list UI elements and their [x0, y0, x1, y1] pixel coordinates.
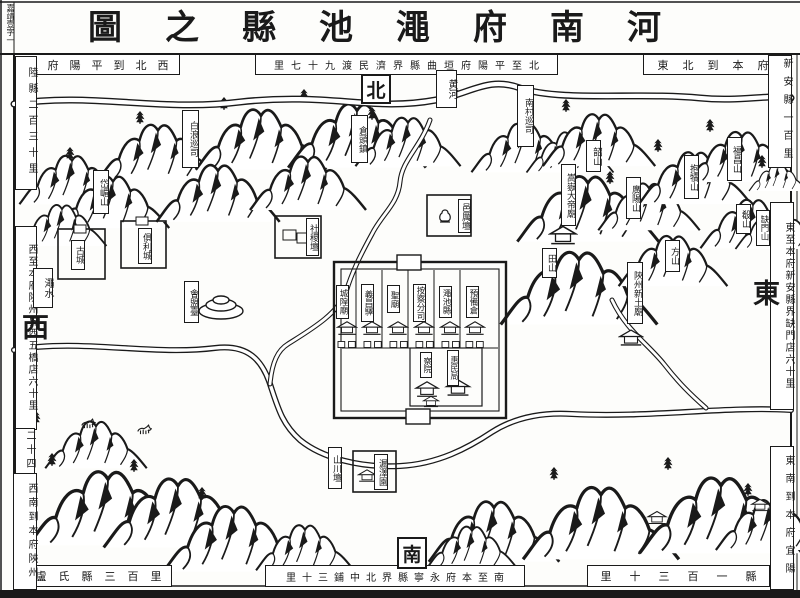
border-note-bottom-center: 里十三鋪中北界縣寧永府本至南: [265, 565, 525, 587]
huimengtai-mound: [199, 296, 243, 319]
guangyang-mountain-label: 廣陽山: [626, 177, 641, 219]
border-note-bottom-left: 盧氏縣三百里: [25, 565, 172, 587]
daimei-mountain-label: 岱嵋山: [93, 170, 109, 214]
mountain-ranges: [18, 104, 800, 571]
gucheng-label: 古城: [71, 240, 85, 270]
shao-mountain-label: 韶山: [586, 140, 601, 172]
border-note-left-bottom: 西南到本府陝州: [13, 473, 37, 590]
border-note-left-small: 二十四: [15, 428, 35, 474]
yilitan-label: 邑厲壇: [458, 199, 471, 233]
border-note-top-left: 平府陽平到北西: [14, 54, 180, 75]
city-sage-temple-label: 聖廟: [387, 285, 400, 313]
baodu-mountain-label: 抱犢山: [684, 155, 699, 199]
corner-collation-mark: 嘉靖壹字一: [2, 4, 14, 54]
nancun-patrol-label: 南村巡司: [517, 85, 534, 147]
shanchuantan-label: 山川壇: [328, 447, 342, 489]
xiao-mountain-label: 殽山: [736, 204, 751, 234]
border-note-bottom-right: 里十三百一縣: [587, 565, 770, 587]
louzeyuan-hall-icon: [358, 470, 375, 481]
louzeyuan-label: 漏澤園: [374, 454, 388, 490]
border-note-top-right: 東北到本府: [643, 54, 783, 75]
city-south-gate: [406, 409, 430, 424]
songyue-temple-label: 嵩嶽大帝廟: [561, 164, 576, 226]
compass-east: 東: [753, 272, 780, 311]
border-note-right-top: 新安縣一百里: [768, 55, 792, 168]
shejitan-label: 社稷壇: [306, 218, 319, 256]
yellow-river: [14, 84, 791, 105]
border-note-left-top: 陸縣二百三十里: [15, 56, 37, 190]
county-city: [334, 255, 506, 424]
yilitan-bell-icon: [440, 210, 451, 222]
compass-west: 西: [22, 306, 49, 345]
fang-mountain-label: 方山: [665, 240, 680, 272]
mian-river-label: 澠水: [33, 268, 53, 308]
city-huimin-bureau-label: 惠民局: [447, 350, 459, 386]
cangtou-town-label: 倉頭鎮: [351, 115, 368, 163]
huimengtai-label: 會盟臺: [184, 281, 199, 323]
border-note-right-bottom: 東南到本府宜陽: [770, 446, 794, 590]
quemen-mountain-label: 缺門山: [756, 210, 770, 246]
compass-north: 北: [361, 74, 391, 104]
historical-map-page: 嘉靖壹字一 圖之縣池澠府南河 平府陽平到北西 里七十九渡民濟界縣曲垣府陽平至北 …: [0, 0, 800, 598]
city-county-seat-label: 澠池縣: [439, 286, 452, 318]
city-censorate-label: 察院: [420, 352, 432, 378]
yellow-river-label: 黄河: [436, 70, 457, 108]
city-temple-chenghuang-label: 城隍廟: [336, 285, 349, 319]
fuchang-mountain-label: 福昌山: [727, 137, 742, 181]
julicheng-label: 俱利城: [138, 228, 152, 264]
city-post-station-label: 義昌驛: [361, 284, 374, 322]
shanzhou-temple-label: 陝州新土廟: [627, 262, 643, 324]
city-surveillance-office-label: 按察分司: [413, 284, 426, 322]
border-note-top-center: 里七十九渡民濟界縣曲垣府陽平至北: [255, 54, 558, 75]
city-building-icons: [338, 322, 485, 407]
tian-mountain-label: 田山: [542, 248, 557, 278]
city-granary-label: 預備倉: [466, 286, 479, 318]
map-title: 圖之縣池澠府南河: [88, 6, 712, 52]
bailang-patrol-label: 白浪巡司: [182, 110, 199, 168]
mian-river: [14, 346, 791, 467]
compass-south: 南: [397, 537, 427, 569]
map-drawing: [0, 0, 800, 598]
city-north-gate: [397, 255, 421, 270]
